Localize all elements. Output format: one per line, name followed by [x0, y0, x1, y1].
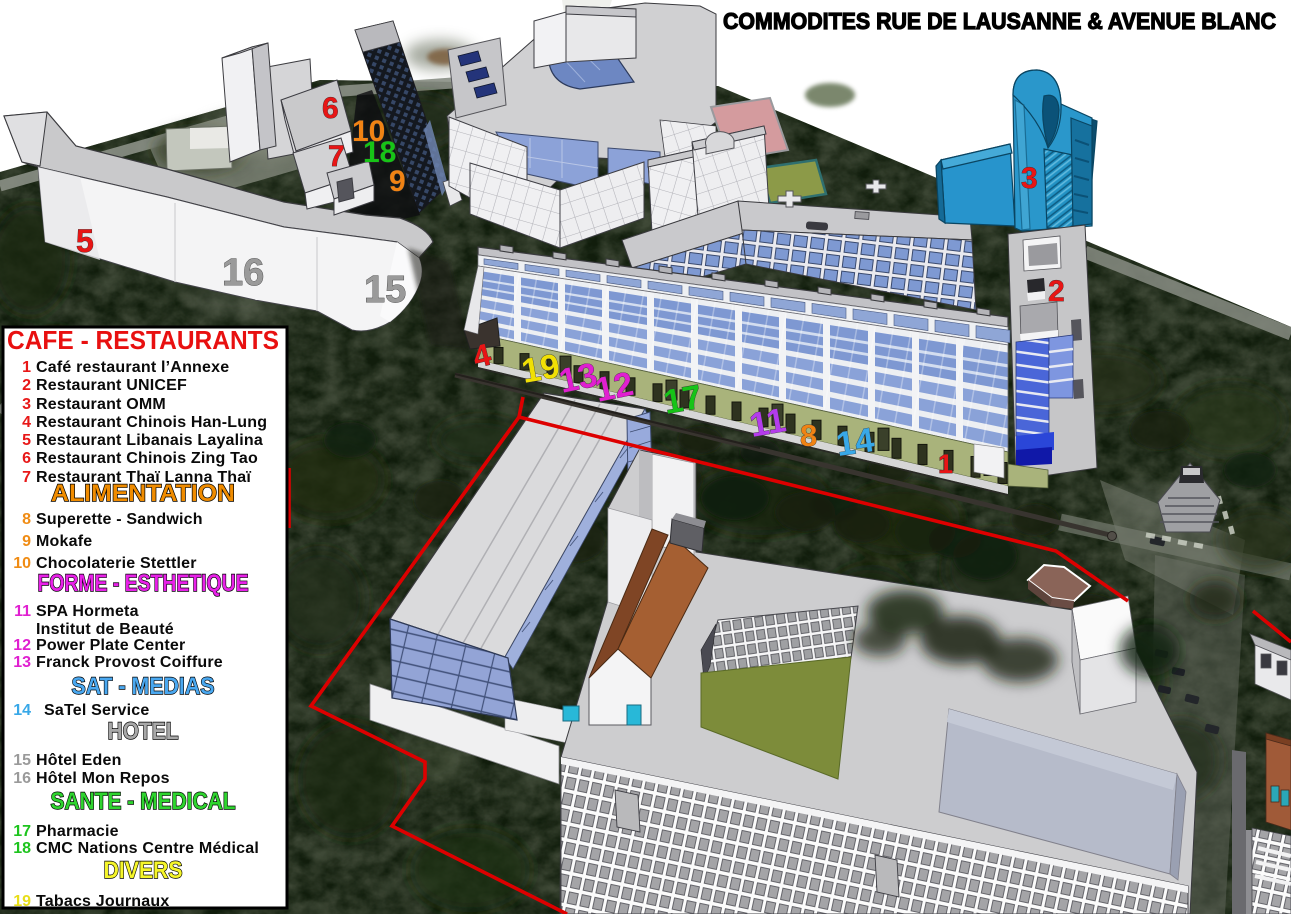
- svg-text:3: 3: [22, 396, 31, 413]
- svg-text:8: 8: [22, 511, 31, 528]
- svg-text:3: 3: [1021, 162, 1038, 195]
- svg-text:HOTEL: HOTEL: [108, 718, 179, 745]
- svg-text:Franck Provost Coiffure: Franck Provost Coiffure: [36, 654, 223, 671]
- svg-text:SAT - MEDIAS: SAT - MEDIAS: [72, 673, 215, 700]
- svg-text:Mokafe: Mokafe: [36, 533, 92, 550]
- svg-text:2: 2: [22, 377, 31, 394]
- svg-text:14: 14: [834, 421, 877, 464]
- svg-text:Hôtel Mon Repos: Hôtel Mon Repos: [36, 770, 170, 787]
- svg-text:11: 11: [747, 401, 789, 445]
- svg-text:10: 10: [13, 555, 31, 572]
- svg-text:16: 16: [13, 770, 31, 787]
- svg-text:Restaurant Libanais Layalina: Restaurant Libanais Layalina: [36, 432, 263, 449]
- svg-text:11: 11: [14, 603, 31, 620]
- svg-text:13: 13: [13, 654, 31, 671]
- svg-text:18: 18: [13, 840, 31, 857]
- svg-text:Hôtel Eden: Hôtel Eden: [36, 752, 122, 769]
- svg-text:5: 5: [76, 223, 94, 259]
- svg-text:12: 12: [592, 365, 637, 410]
- svg-text:FORME - ESTHETIQUE: FORME - ESTHETIQUE: [38, 570, 249, 597]
- svg-text:CAFE - RESTAURANTS: CAFE - RESTAURANTS: [7, 325, 279, 355]
- svg-text:9: 9: [389, 165, 406, 198]
- svg-text:15: 15: [13, 752, 31, 769]
- svg-text:12: 12: [13, 637, 31, 654]
- svg-text:Chocolaterie Stettler: Chocolaterie Stettler: [36, 555, 197, 572]
- svg-text:17: 17: [661, 378, 705, 422]
- svg-text:SANTE - MEDICAL: SANTE - MEDICAL: [51, 788, 236, 815]
- svg-text:Restaurant Chinois Zing Tao: Restaurant Chinois Zing Tao: [36, 450, 258, 467]
- svg-text:8: 8: [800, 418, 817, 453]
- svg-text:1: 1: [938, 449, 953, 479]
- svg-text:Restaurant UNICEF: Restaurant UNICEF: [36, 377, 187, 394]
- svg-text:7: 7: [22, 469, 31, 486]
- svg-text:4: 4: [22, 414, 31, 431]
- svg-text:6: 6: [22, 450, 31, 467]
- svg-text:CMC Nations Centre Médical: CMC Nations Centre Médical: [36, 840, 259, 857]
- svg-text:15: 15: [364, 269, 406, 311]
- svg-text:16: 16: [222, 252, 264, 294]
- svg-text:Restaurant OMM: Restaurant OMM: [36, 396, 166, 413]
- svg-text:Power Plate Center: Power Plate Center: [36, 637, 185, 654]
- svg-text:Superette - Sandwich: Superette - Sandwich: [36, 511, 203, 528]
- svg-text:1: 1: [22, 359, 31, 376]
- svg-text:DIVERS: DIVERS: [104, 857, 183, 884]
- svg-text:Café restaurant l’Annexe: Café restaurant l’Annexe: [36, 359, 229, 376]
- svg-text:19: 19: [13, 893, 31, 910]
- svg-text:SaTel Service: SaTel Service: [44, 702, 149, 719]
- svg-text:Pharmacie: Pharmacie: [36, 823, 119, 840]
- svg-text:Restaurant Chinois Han-Lung: Restaurant Chinois Han-Lung: [36, 414, 267, 431]
- svg-text:9: 9: [22, 533, 31, 550]
- svg-text:COMMODITES RUE DE LAUSANNE & A: COMMODITES RUE DE LAUSANNE & AVENUE BLAN…: [723, 8, 1276, 34]
- svg-text:2: 2: [1048, 275, 1065, 308]
- svg-text:Tabacs Journaux: Tabacs Journaux: [36, 893, 169, 910]
- svg-text:17: 17: [13, 823, 31, 840]
- svg-text:Restaurant Thaï Lanna Thaï: Restaurant Thaï Lanna Thaï: [36, 469, 251, 486]
- svg-text:SPA Hormeta: SPA Hormeta: [36, 603, 139, 620]
- svg-text:6: 6: [322, 92, 339, 125]
- svg-text:14: 14: [13, 702, 31, 719]
- svg-text:5: 5: [22, 432, 31, 449]
- svg-text:7: 7: [328, 140, 345, 173]
- svg-text:Institut de Beauté: Institut de Beauté: [36, 621, 174, 638]
